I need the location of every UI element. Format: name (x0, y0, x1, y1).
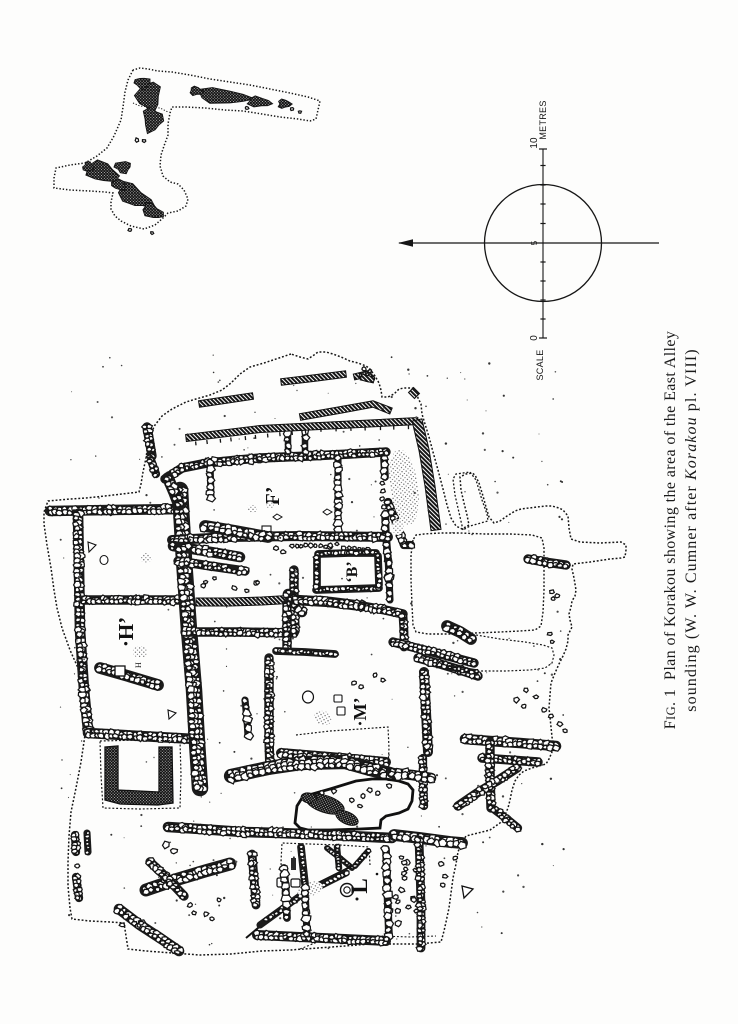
svg-text:5: 5 (530, 240, 539, 245)
svg-text:F’: F’ (262, 487, 284, 506)
svg-text:H: H (134, 662, 143, 668)
svg-text:L: L (347, 878, 372, 893)
svg-text:sounding (W. W. Cumner after K: sounding (W. W. Cumner after Korakou pl.… (683, 348, 700, 711)
svg-text:FIG. 1 Plan of Korakou showin: FIG. 1 Plan of Korakou showing the area … (662, 331, 679, 730)
svg-text:·H’: ·H’ (114, 617, 138, 647)
svg-text:·M’: ·M’ (350, 698, 370, 727)
svg-text:10: 10 (529, 137, 540, 149)
svg-text:METRES: METRES (538, 100, 548, 139)
svg-text:‘B’: ‘B’ (344, 561, 361, 582)
svg-text:SCALE: SCALE (535, 349, 545, 380)
svg-text:0: 0 (529, 335, 540, 341)
